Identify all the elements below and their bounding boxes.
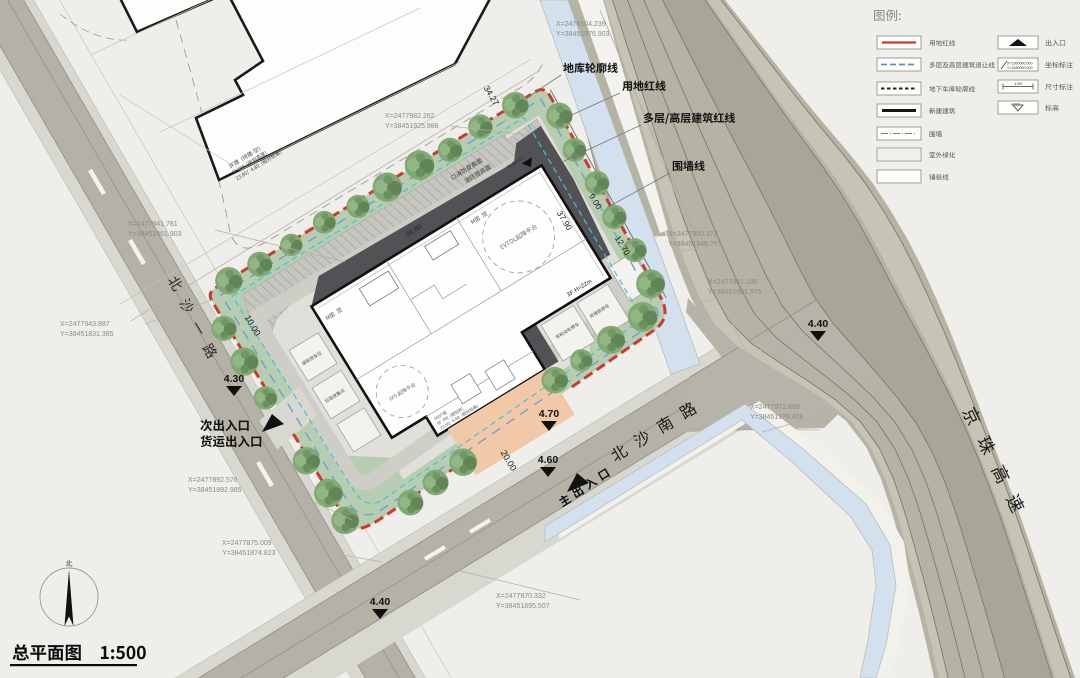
svg-text:1.50: 1.50	[1014, 81, 1023, 86]
svg-text:X=2477941.781: X=2477941.781	[128, 221, 178, 228]
svg-text:X=2477950.272: X=2477950.272	[668, 231, 718, 238]
svg-text:X=2477972.699: X=2477972.699	[750, 404, 800, 411]
svg-text:Y=38451861.903: Y=38451861.903	[128, 231, 182, 238]
svg-text:X=2477892.576: X=2477892.576	[188, 477, 238, 484]
svg-text:4.70: 4.70	[539, 408, 560, 420]
svg-text:Y=38451976.903: Y=38451976.903	[556, 31, 610, 38]
svg-text:4.60: 4.60	[538, 454, 559, 466]
svg-text:Y=38451831.385: Y=38451831.385	[60, 331, 114, 338]
svg-text:X=2477941.180: X=2477941.180	[708, 279, 758, 286]
svg-text:Y=38451892.985: Y=38451892.985	[188, 487, 242, 494]
svg-text:Y=38451946.257: Y=38451946.257	[668, 241, 722, 248]
svg-text:X=2477982.262: X=2477982.262	[385, 113, 435, 120]
svg-text:Y=38451961.575: Y=38451961.575	[708, 289, 762, 296]
svg-text:Y=38451978.406: Y=38451978.406	[750, 414, 804, 421]
svg-text:Y=38451874.823: Y=38451874.823	[222, 550, 276, 557]
svg-text:X=2478104.239: X=2478104.239	[556, 21, 606, 28]
svg-text:4.40: 4.40	[370, 596, 391, 608]
svg-text:Y=38451895.507: Y=38451895.507	[496, 603, 550, 610]
svg-text:X=2477943.887: X=2477943.887	[60, 321, 110, 328]
svg-text:X=2950000.000: X=2950000.000	[1007, 62, 1032, 66]
svg-text:X=2477870.332: X=2477870.332	[496, 593, 546, 600]
svg-text:4.500: 4.500	[1011, 103, 1020, 107]
svg-text:Y=38451925.988: Y=38451925.988	[385, 123, 439, 130]
svg-text:4.40: 4.40	[808, 318, 829, 330]
svg-text:Y=2480000.000: Y=2480000.000	[1007, 66, 1032, 70]
svg-text:X=2477875.009: X=2477875.009	[222, 540, 272, 547]
svg-text:4.30: 4.30	[224, 373, 245, 385]
